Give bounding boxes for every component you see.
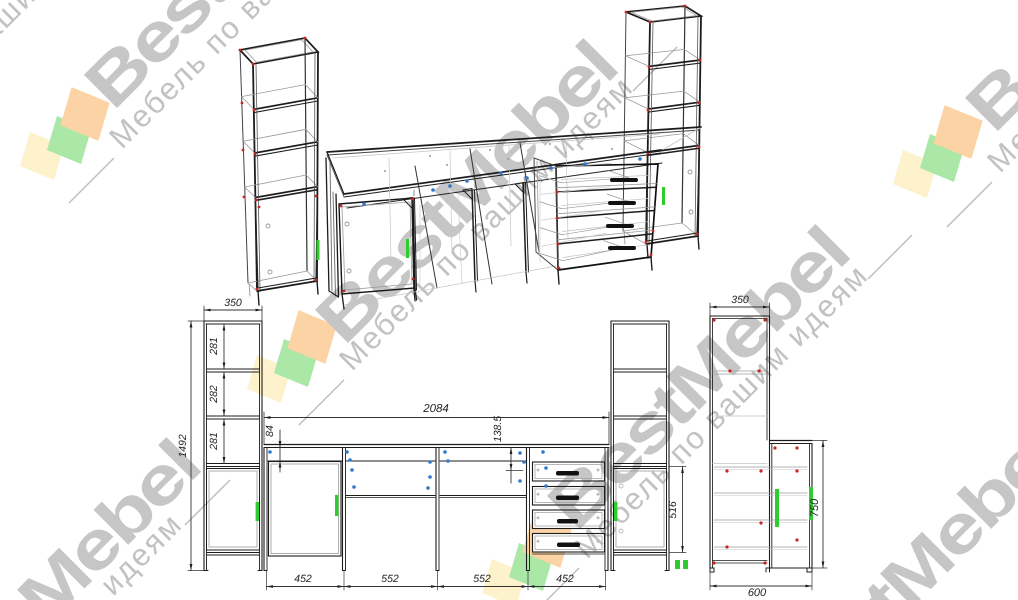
svg-text:552: 552	[381, 573, 399, 585]
svg-text:452: 452	[556, 573, 574, 585]
svg-text:452: 452	[294, 573, 312, 585]
svg-text:84: 84	[264, 425, 276, 437]
svg-text:1492: 1492	[177, 434, 189, 458]
svg-text:281: 281	[208, 432, 220, 451]
svg-text:350: 350	[224, 297, 242, 309]
svg-text:2084: 2084	[422, 403, 449, 415]
svg-text:350: 350	[731, 294, 749, 306]
svg-text:516: 516	[667, 501, 679, 519]
svg-text:282: 282	[208, 385, 220, 404]
svg-text:750: 750	[809, 498, 821, 517]
svg-text:600: 600	[748, 587, 767, 599]
svg-text:281: 281	[208, 337, 220, 356]
svg-text:138.5: 138.5	[492, 416, 504, 442]
svg-text:552: 552	[473, 573, 491, 585]
